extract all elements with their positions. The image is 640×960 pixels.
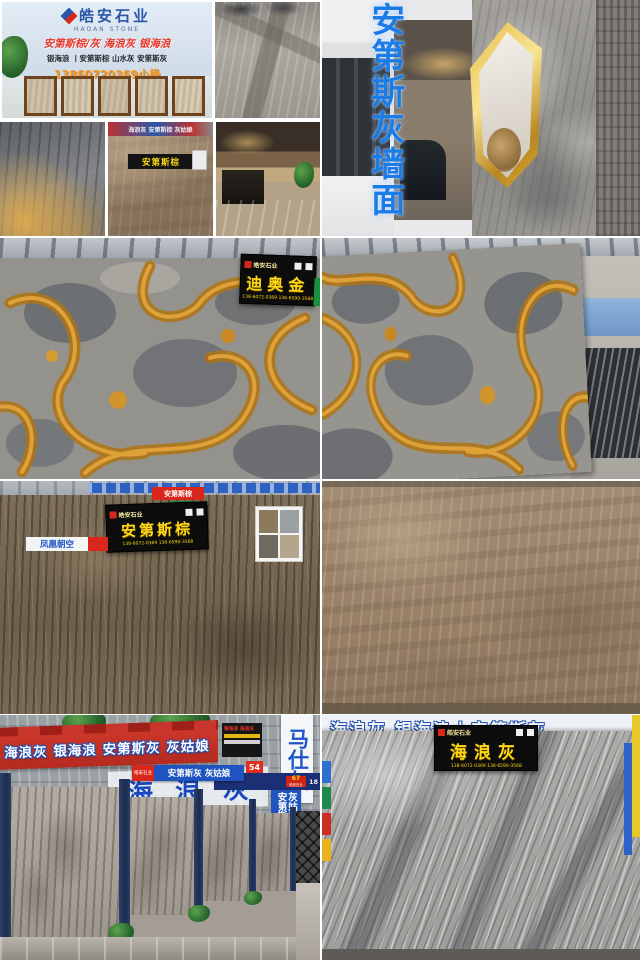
poster-thumb [259,535,278,558]
floor-strip [322,949,640,960]
slab-bottom-edge [322,703,640,714]
left-blue-label: 凤凰朝空 [26,537,108,551]
stall-number-badge: 54 [246,761,263,773]
photo-collage: 皓安石业 HAOAN STONE 安第斯棕/灰 海浪灰 银海浪 银海浪 丨安第斯… [0,0,640,960]
mini-sign-bar [224,740,260,744]
sign-phone: 138-6072-0369 136-6590-3568 [451,763,522,768]
poster-thumb [280,535,299,558]
display-slab [256,813,290,891]
corner-logo: 皓安石业 [289,783,303,786]
framed-slab [24,76,57,116]
storefront-black-line: 银海浪 丨安第斯棕 山水灰 安第斯灰 [2,53,212,64]
brand-logo-icon [60,7,77,24]
sign-phone: 138-6072-0369 136-6590-3568 [122,539,193,547]
framed-slab [172,76,205,116]
rack-post [194,789,203,919]
marble-poster [256,507,302,561]
gold-vein-slab-tilted [322,243,592,479]
edge-tag [322,813,331,835]
blue-sign-text: 安第斯灰 灰姑娘 [154,765,244,781]
vertical-caption: 安第斯灰墙面 [366,2,402,236]
qr-card [192,150,207,170]
blue-sign-distant [580,298,640,336]
culture-stone-column [596,0,640,236]
rack-post [0,773,11,945]
sign-logo-text: 皓安石业 [253,260,290,270]
display-slab [11,787,119,939]
edge-tag [322,761,331,783]
photo-dior-slab-right [322,238,640,479]
display-slab [203,805,249,901]
blue-sign-logo: 皓安石业 [132,765,154,781]
photo-slab-aisle: 海浪灰 银海浪 安第斯灰 灰姑娘 银海浪 海浪灰 海浪灰 54 皓安石业 安第斯… [0,715,320,960]
left-blue-label-text: 凤凰朝空 [26,538,88,550]
dior-gold-sign: 皓安石业 迪奥金 138-6072-0369 136-6590-3568 [239,254,317,307]
edge-strip-yellow [632,715,640,837]
billboard: 皓安石业 HAOAN STONE 安第斯棕/灰 海浪灰 银海浪 银海浪 丨安第斯… [2,2,212,76]
mini-sign-line: 银海浪 海浪灰 [224,725,258,732]
blue-banner-distant [88,483,320,493]
qr-icon [196,508,203,515]
floor-plant [188,905,210,922]
logo-icon [244,260,251,267]
red-banner-text: 海浪灰 银海浪 安第斯灰 灰姑娘 [0,734,218,762]
corner-number-badge: 67 皓安石业 [286,776,306,787]
reception-counter [400,140,446,200]
tan-slab-tag: 安第斯棕 [128,154,194,169]
aisle-floor-right [296,883,320,960]
sign-logo-text: 皓安石业 [447,728,512,737]
slab-top-edge [322,481,640,487]
logo-icon [109,511,116,518]
brand-name-cn: 皓安石业 [79,5,151,26]
mini-banner-text: 海浪灰 安第斯棕 灰姑娘 [128,125,192,134]
photo-andes-brown: 安第斯棕 皓安石业 安第斯棕 138-6072-0369 136-6590-35… [0,481,320,714]
qr-icon [185,509,192,516]
mirror-glass [479,32,533,178]
mini-sign-bar [224,734,260,738]
floor-plant [244,891,262,905]
label-red-block [88,537,108,551]
dark-lattice [296,811,320,883]
qr-icon [294,262,301,269]
photo-wave-grey-slab: 海浪灰 银海浪丨安第斯灰 皓安石业 海浪灰 138-6072-0369 136-… [322,715,640,960]
edge-tag [322,839,331,861]
mirror-reflection [487,128,521,172]
framed-slab [98,76,131,116]
plant [294,162,314,188]
wave-grey-sign: 皓安石业 海浪灰 138-6072-0369 136-6590-3568 [434,725,538,771]
sign-title: 安第斯棕 [121,518,194,542]
photo-tan-slab: 海浪灰 安第斯棕 灰姑娘 安第斯棕 [108,122,213,236]
framed-slab [135,76,168,116]
poster-thumb [259,510,278,533]
photo-grey-wall-showroom: 安第斯灰墙面 [322,0,640,236]
brand-name-en: HAOAN STONE [2,26,212,33]
framed-slab-row [24,76,212,118]
photo-lobby [216,122,320,236]
framed-slab [61,76,94,116]
dark-slab-distant [584,348,640,458]
display-slab [130,797,194,915]
photo-marble-floor [215,2,320,118]
corner-red-tag: 安第斯棕 [152,487,204,500]
photo-dior-slab-left: 皓安石业 迪奥金 138-6072-0369 136-6590-3568 [0,238,320,479]
qr-icon [527,729,534,736]
rack-post [249,799,256,903]
rack-post [290,807,296,891]
qr-icon [516,729,523,736]
glossy-floor [0,937,320,960]
poster-thumb [280,510,299,533]
reception-desk [222,170,264,204]
blue-product-sign: 皓安石业 安第斯灰 灰姑娘 [132,765,244,781]
corner-red-tag-text: 安第斯棕 [164,489,192,499]
mini-banner: 海浪灰 安第斯棕 灰姑娘 [108,122,213,136]
green-tag [313,278,320,306]
tan-slab-tag-text: 安第斯棕 [142,156,180,168]
edge-strip-blue [624,743,632,855]
photo-storefront: 皓安石业 HAOAN STONE 安第斯棕/灰 海浪灰 银海浪 银海浪 丨安第斯… [2,2,212,118]
sign-title: 海浪灰 [450,738,522,763]
red-banner: 海浪灰 银海浪 安第斯灰 灰姑娘 [0,720,218,770]
stall-number-text: 54 [249,763,260,772]
photo-dark-wall [0,122,105,236]
small-number: 18 [309,778,318,786]
rack-post [119,779,130,937]
storefront-red-line: 安第斯棕/灰 海浪灰 银海浪 [2,36,212,51]
photo-brown-slab-closeup [322,481,640,714]
qr-icon [305,262,312,269]
mini-black-sign: 银海浪 海浪灰 [222,723,262,757]
edge-tag [322,787,331,809]
floor-reflection [216,200,320,236]
logo-icon [438,729,445,736]
inner-showroom [394,20,484,220]
andes-brown-sign: 皓安石业 安第斯棕 138-6072-0369 136-6590-3568 [105,501,209,553]
sign-title: 迪奥金 [246,269,310,295]
